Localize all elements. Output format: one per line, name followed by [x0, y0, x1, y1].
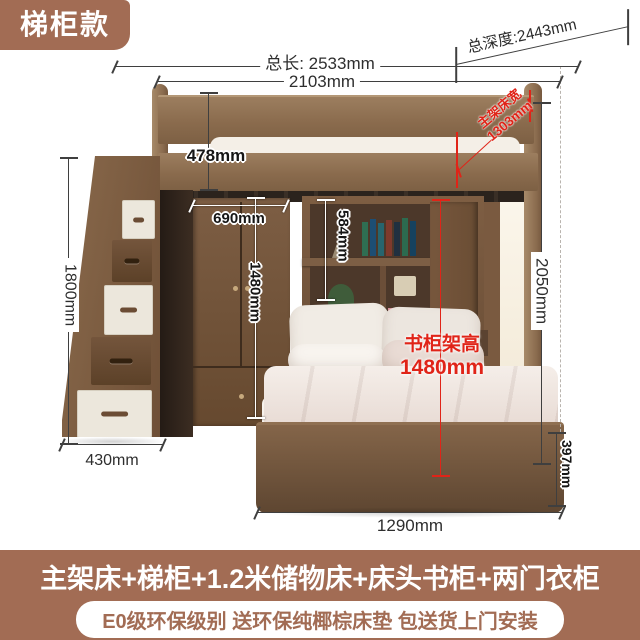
banner-title: 主架床+梯柜+1.2米储物床+床头书柜+两门衣柜 [0, 557, 640, 596]
dim-label-total-depth: 总深度:2443mm [466, 16, 578, 57]
wardrobe-knob-left [233, 286, 238, 291]
frame-gap-shadow [160, 190, 193, 437]
projection-line [560, 66, 561, 432]
duvet [264, 366, 558, 430]
stair-handrail [51, 151, 94, 422]
dim-label-total-length: 总长: 2533mm [260, 54, 380, 74]
storage-bed-base [256, 422, 564, 513]
floor-shadow-stair [56, 437, 168, 446]
stair-drawer-5 [77, 390, 152, 438]
floor-shadow-bed [262, 507, 560, 518]
stair-drawer-3 [104, 285, 153, 335]
wardrobe-knob-right [245, 286, 250, 291]
dim-line-upper-length [157, 81, 560, 82]
style-badge: 梯柜款 [0, 0, 130, 50]
storage-box [394, 276, 416, 296]
dim-label-bed-length: 1290mm [377, 516, 443, 536]
product-image: 总长: 2533mm 2103mm 总深度:2443mm 478mm 690mm… [0, 0, 640, 640]
stair-cabinet [60, 154, 162, 438]
stair-drawer-4 [91, 337, 151, 385]
stair-drawer-2 [112, 240, 152, 282]
dim-line-total-depth [456, 26, 628, 65]
banner-subtitle-pill: E0级环保级别 送环保纯椰棕床垫 包送货上门安装 [76, 601, 564, 638]
dim-line-total-length [115, 66, 578, 67]
bottom-banner: 主架床+梯柜+1.2米储物床+床头书柜+两门衣柜 E0级环保级别 送环保纯椰棕床… [0, 550, 640, 640]
books-row [362, 216, 416, 256]
eiffel-tower-decor [332, 218, 348, 258]
bookcase-shelf [302, 258, 436, 266]
dim-label-upper-length: 2103mm [284, 72, 360, 92]
bookcase-top-compartment [310, 204, 430, 258]
wardrobe-drawer-knob [239, 394, 244, 399]
upper-bed-frame [158, 153, 538, 191]
wardrobe-door-divider [240, 202, 242, 366]
dim-label-stair-depth: 430mm [85, 452, 138, 470]
stair-drawer-1 [122, 200, 155, 239]
